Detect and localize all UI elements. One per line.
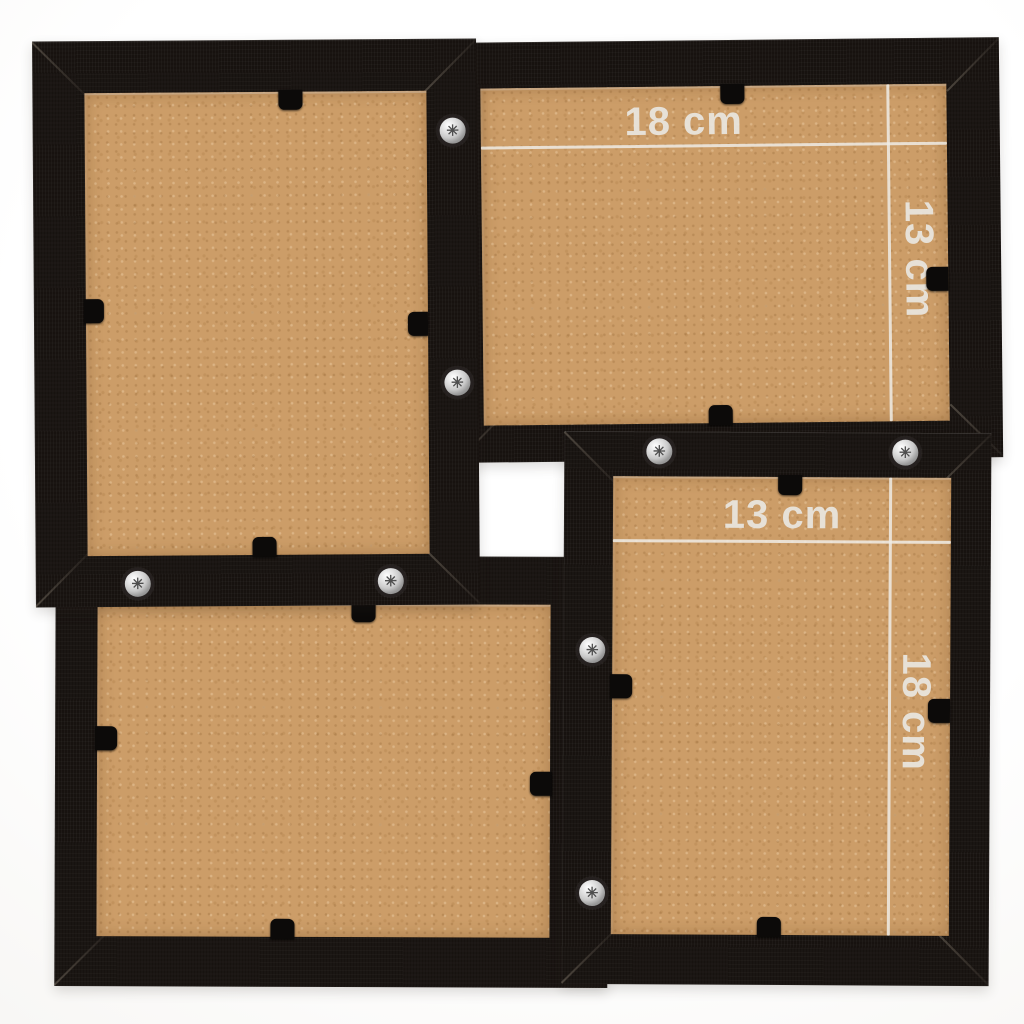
screw-icon: ✳ xyxy=(892,440,918,466)
screw-icon: ✳ xyxy=(444,370,470,396)
clip-icon xyxy=(270,919,294,939)
dimension-label-width: 13 cm xyxy=(643,491,921,538)
clip-icon xyxy=(252,537,276,557)
mitre-line xyxy=(31,42,85,95)
screw-icon: ✳ xyxy=(579,880,605,906)
mitre-line xyxy=(936,932,989,986)
clip-icon xyxy=(778,475,802,495)
screw-icon: ✳ xyxy=(440,118,466,144)
clip-icon xyxy=(408,312,428,336)
clip-icon xyxy=(720,84,744,104)
dimension-label-height: 13 cm xyxy=(895,194,942,324)
mitre-line xyxy=(427,551,481,604)
screw-icon: ✳ xyxy=(378,568,404,594)
screw-icon: ✳ xyxy=(125,571,151,597)
dimension-label-width: 18 cm xyxy=(480,96,886,146)
clip-icon xyxy=(610,674,632,698)
screw-icon: ✳ xyxy=(646,438,672,464)
mitre-line xyxy=(35,553,88,607)
photo-frame-bottom-right: 13 cm 18 cm ✳ ✳ ✳ ✳ xyxy=(562,431,992,986)
clip-icon xyxy=(926,267,948,291)
mitre-line xyxy=(946,37,999,91)
photo-backdrop: 18 cm 13 cm ✳ ✳ ✳ ✳ 1 xyxy=(0,0,1024,1024)
mitre-line xyxy=(561,930,615,983)
photo-frame-top-left: ✳ ✳ ✳ ✳ xyxy=(32,38,480,607)
clip-icon xyxy=(928,699,950,723)
clip-icon xyxy=(278,90,302,110)
clip-icon xyxy=(95,726,117,750)
clip-icon xyxy=(757,917,781,937)
mitre-line xyxy=(54,932,108,986)
mdf-backing xyxy=(96,603,550,938)
clip-icon xyxy=(709,405,733,425)
clip-icon xyxy=(530,772,552,796)
mdf-backing xyxy=(84,91,429,556)
photo-frame-bottom-left xyxy=(54,555,609,988)
clip-icon xyxy=(84,299,104,323)
photo-frame-top-right: 18 cm 13 cm xyxy=(453,37,1003,463)
mitre-line xyxy=(423,39,476,93)
screw-icon: ✳ xyxy=(579,637,605,663)
mitre-line xyxy=(564,431,617,485)
